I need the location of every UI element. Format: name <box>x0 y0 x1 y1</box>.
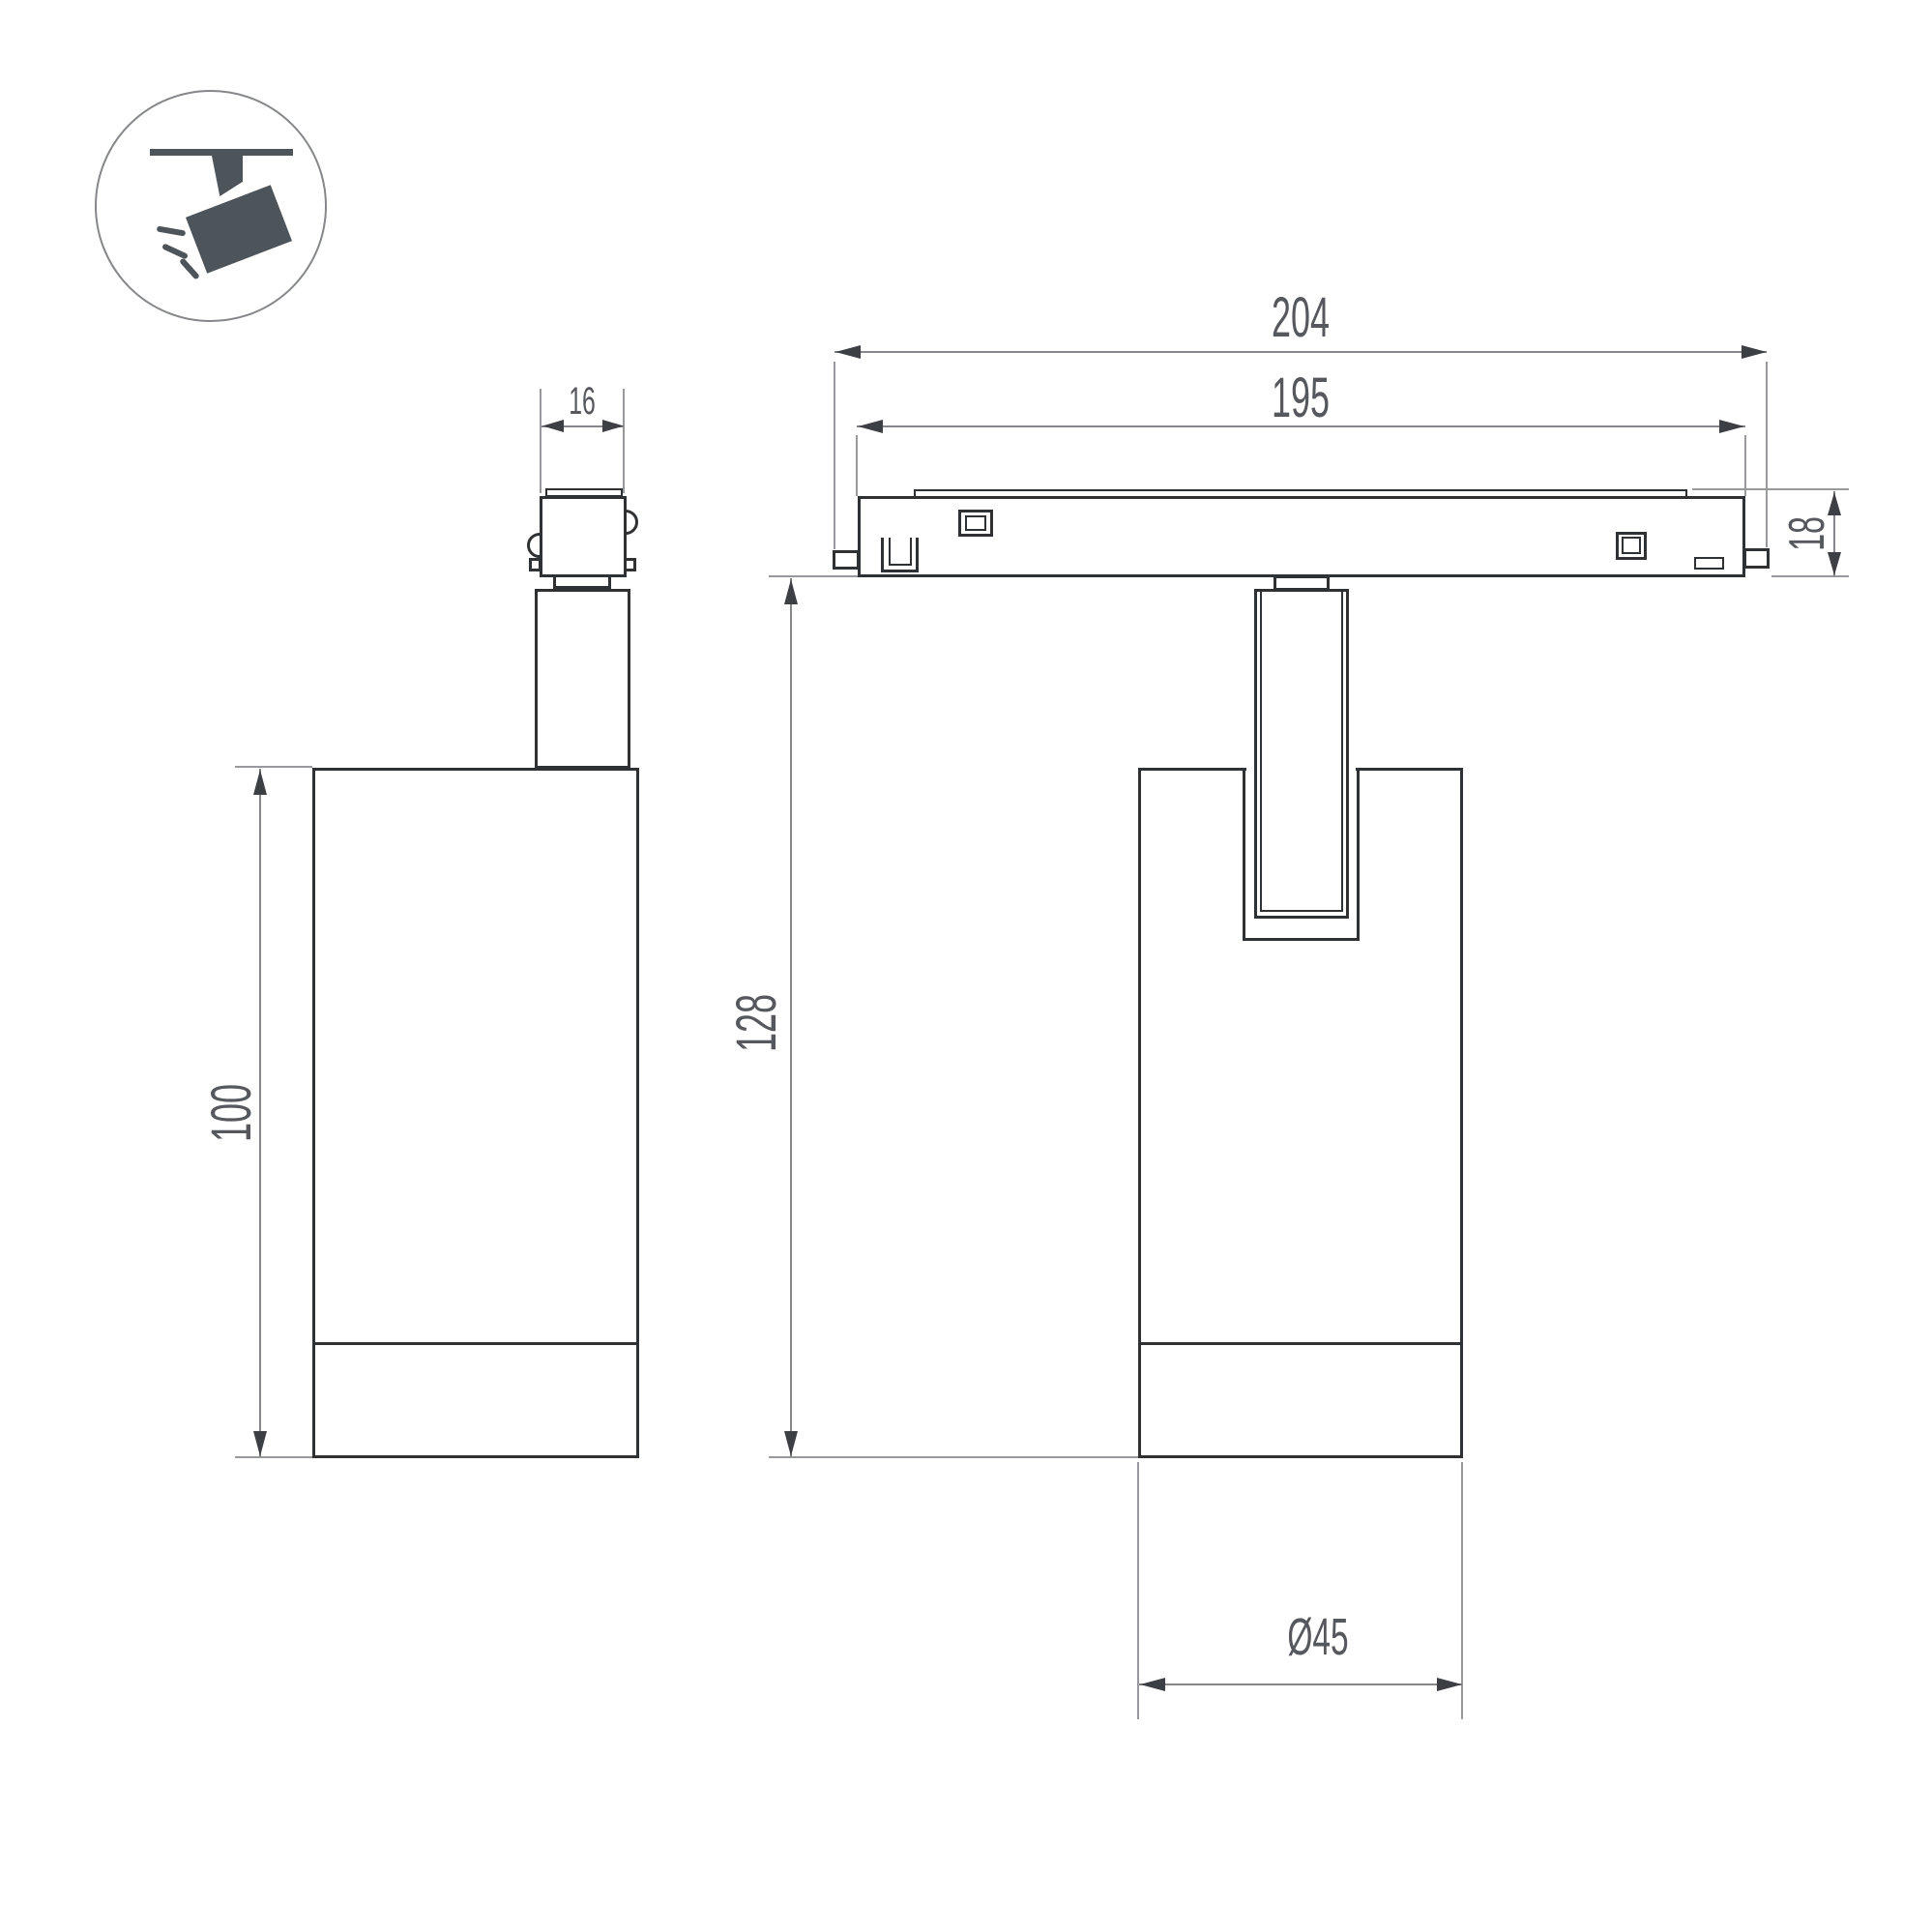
spot-body-front-top-right <box>1356 768 1463 771</box>
dim-45-ext-right <box>1461 1462 1463 1719</box>
dim-18-label: 18 <box>1781 498 1833 570</box>
front-view <box>0 0 1932 1932</box>
dim-45-ext-left <box>1137 1462 1139 1719</box>
dim-204-label: 204 <box>1241 289 1361 347</box>
dim-100-ext-top <box>235 766 312 768</box>
track-bar <box>858 496 1745 577</box>
spot-stem-front-inner <box>1260 589 1343 912</box>
spot-body-front-trim-line <box>1141 1342 1460 1345</box>
dim-128-label: 128 <box>728 975 786 1070</box>
track-end-tab-left <box>833 550 860 570</box>
body-recess-wall-left <box>1243 768 1245 941</box>
dim-45-line <box>1139 1683 1462 1685</box>
drawing-canvas: 16 100 204 195 18 <box>0 0 1932 1932</box>
dim-16-ext-left <box>540 389 542 493</box>
track-slot-right <box>1694 557 1724 570</box>
dim-128-ext-bottom <box>769 1456 1138 1458</box>
dim-128-ext-top <box>769 575 858 577</box>
dim-45-label: Ø45 <box>1258 1609 1378 1665</box>
dim-18-ext-bottom <box>1771 575 1849 577</box>
body-recess-bottom <box>1243 938 1360 941</box>
body-recess-wall-right <box>1357 768 1360 941</box>
dim-16-ext-right <box>623 389 625 493</box>
track-u-clip-inner <box>889 538 912 566</box>
dim-100-label: 100 <box>203 1065 261 1160</box>
dim-18-ext-top <box>1692 488 1849 490</box>
dim-204-ext-right <box>1766 362 1768 547</box>
dim-195-ext-right <box>1744 435 1746 496</box>
track-end-tab-right <box>1743 548 1770 569</box>
dim-16-label: 16 <box>552 380 612 423</box>
dim-195-ext-left <box>856 435 858 496</box>
dim-128-line <box>790 578 792 1457</box>
dim-100-ext-bottom <box>235 1456 312 1458</box>
spot-body-front-top-left <box>1138 768 1246 771</box>
track-window-left-inner <box>965 515 986 531</box>
dim-195-label: 195 <box>1241 369 1361 427</box>
track-window-right-inner <box>1622 537 1641 554</box>
dim-204-ext-left <box>834 362 835 549</box>
dim-204-line <box>834 351 1767 353</box>
